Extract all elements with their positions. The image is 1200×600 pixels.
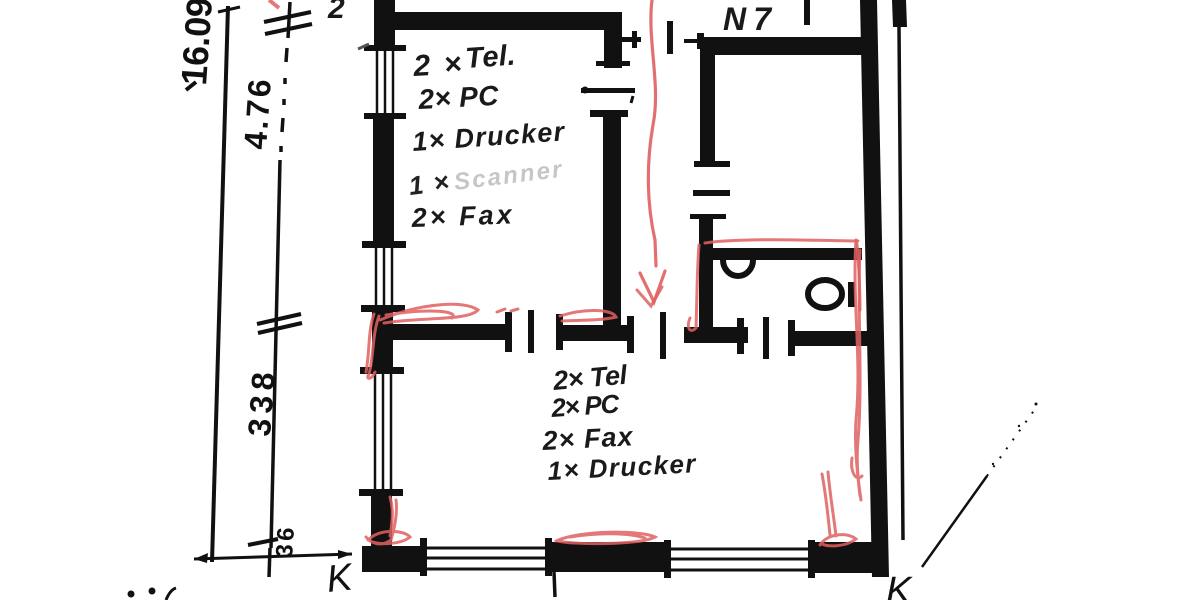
svg-text:2× PC: 2× PC: [549, 388, 621, 423]
svg-text:K: K: [886, 570, 913, 600]
svg-text:2: 2: [327, 0, 345, 25]
svg-text:Tel.: Tel.: [464, 40, 516, 75]
svg-text:4.76: 4.76: [237, 78, 278, 150]
svg-text:2× PC: 2× PC: [417, 80, 500, 115]
svg-text:338: 338: [241, 371, 281, 437]
svg-text:16.09: 16.09: [173, 0, 220, 87]
svg-text:2× Fax: 2× Fax: [541, 421, 634, 456]
svg-text:2× Fax: 2× Fax: [410, 199, 513, 233]
